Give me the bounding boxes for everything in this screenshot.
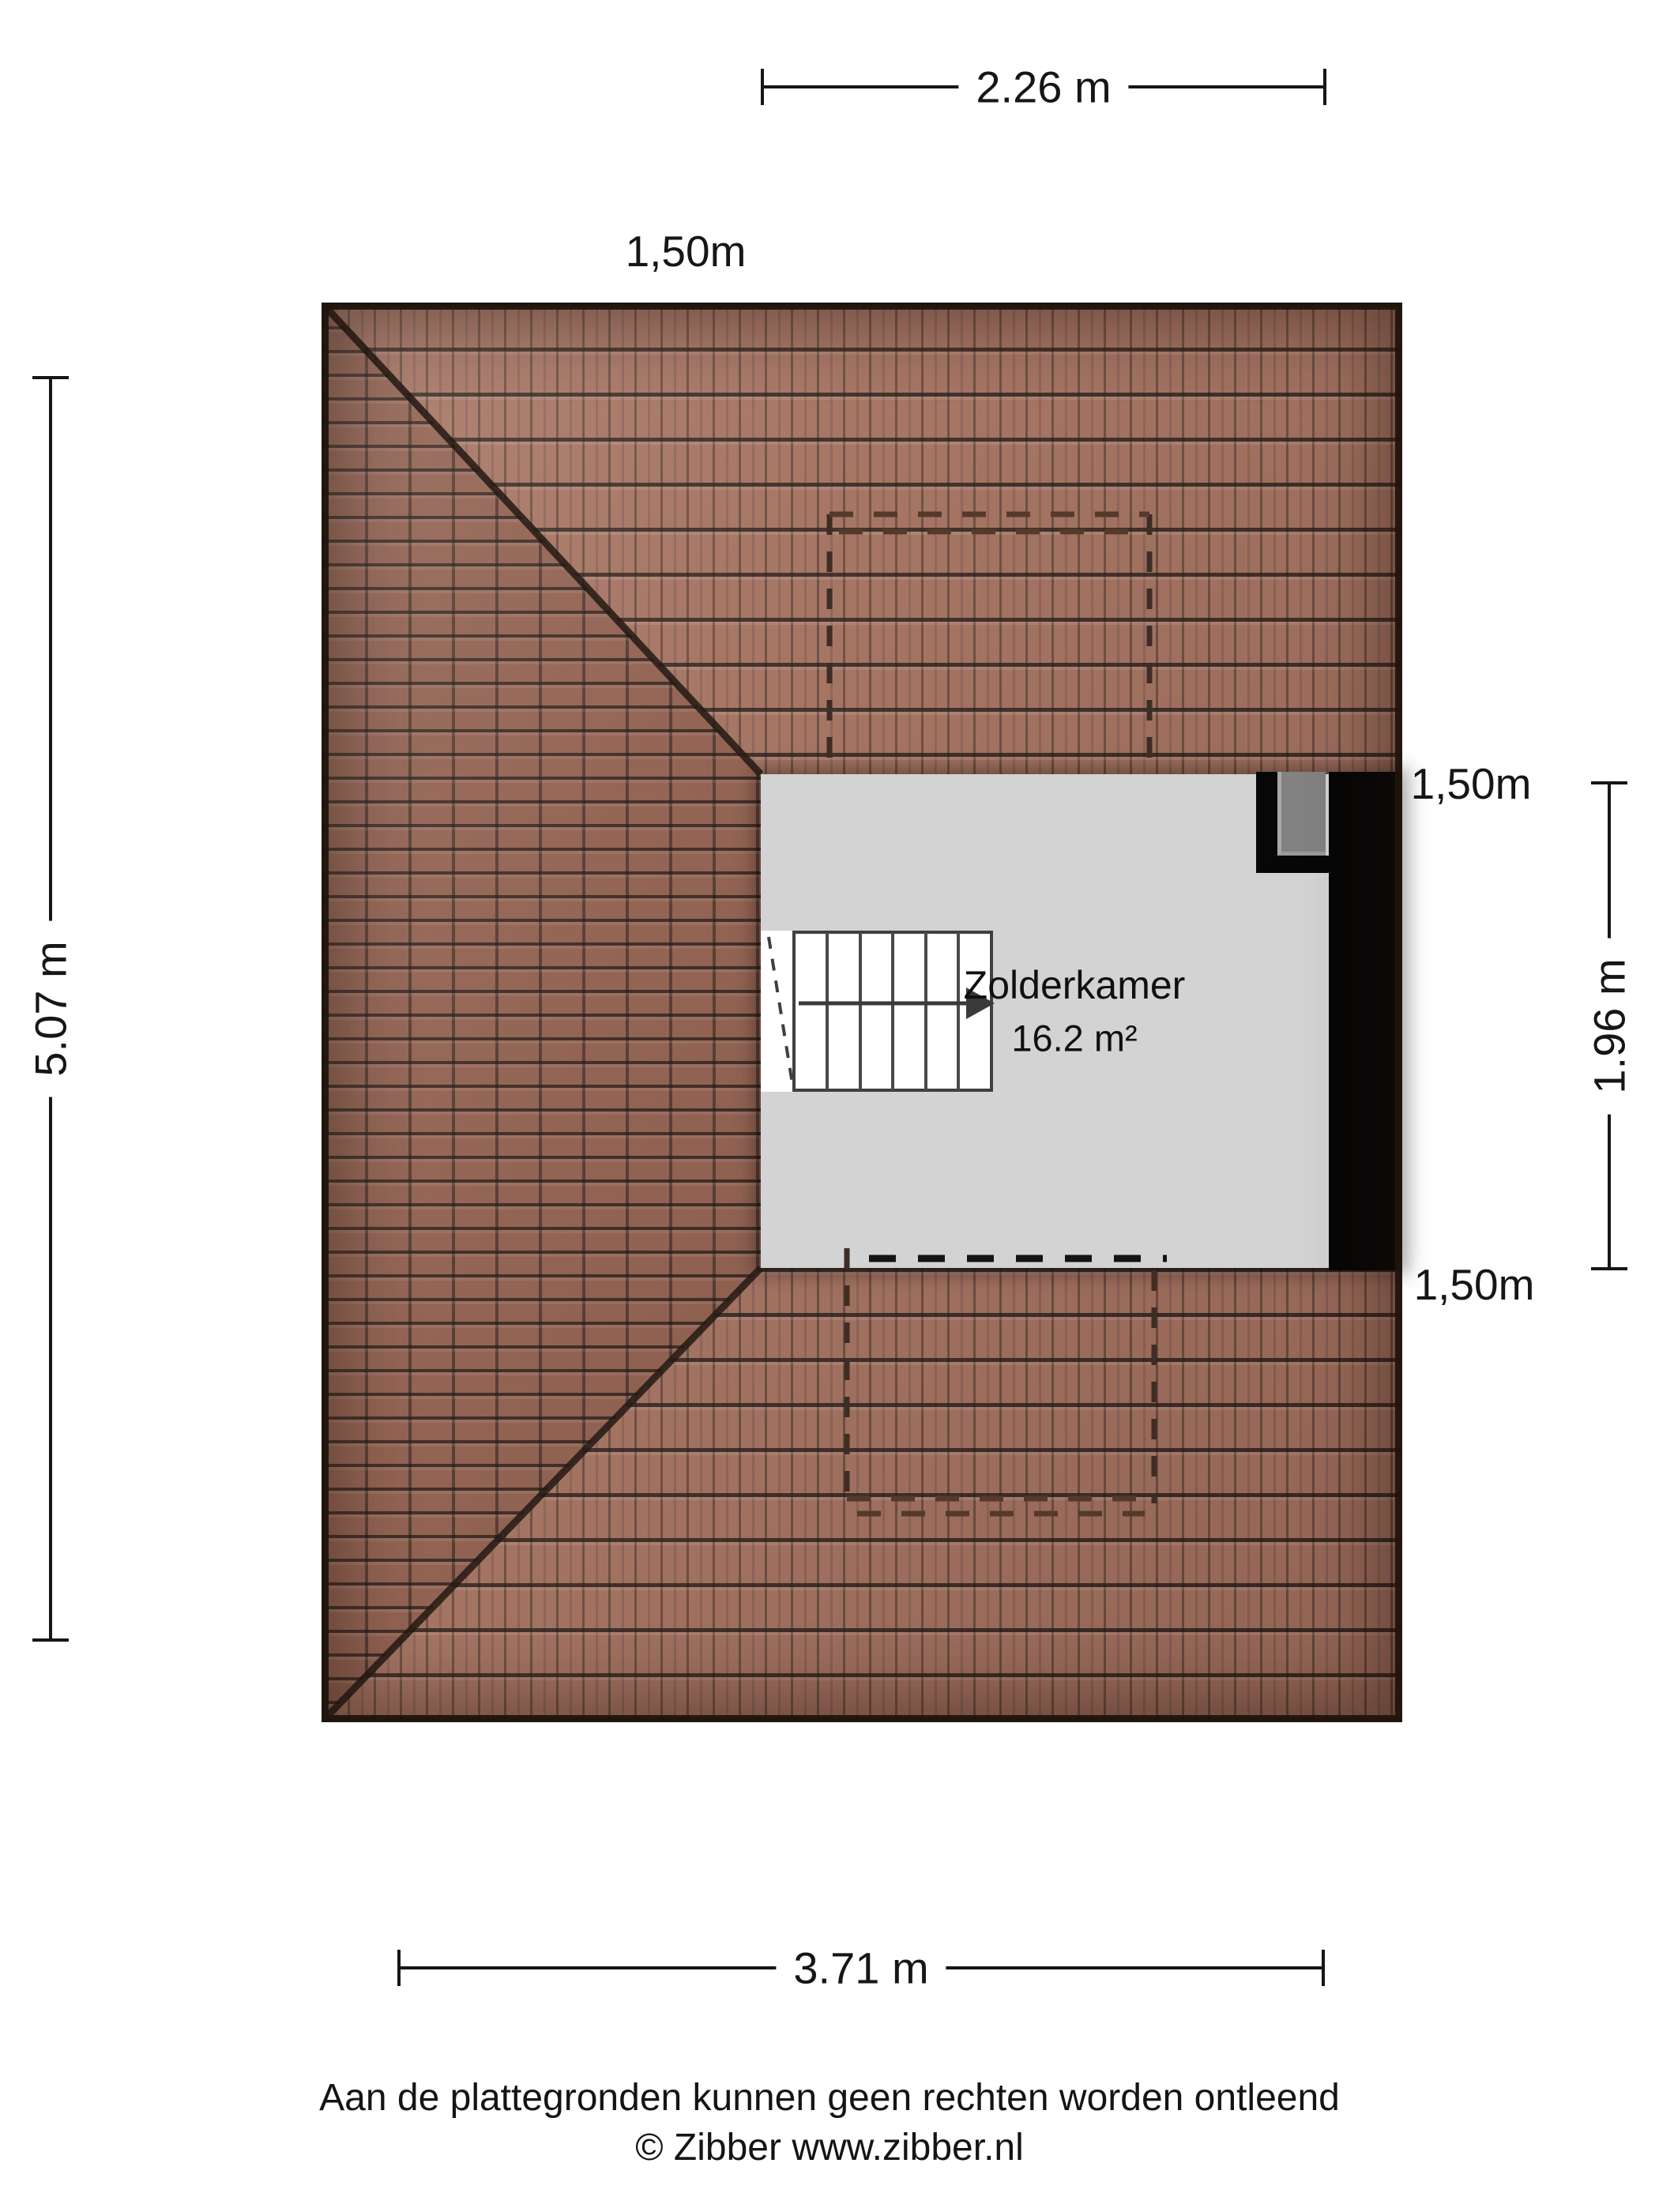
floorplan-page: 2.26 m 1,50m 5.07 m 1.96 m 1,50m 1,50m (0, 0, 1659, 2212)
dimension-left-label: 5.07 m (25, 920, 77, 1097)
room-area-label: 16.2 m² (1011, 1017, 1137, 1060)
floorplan-drawing: Zolderkamer 16.2 m² (322, 303, 1402, 1722)
wall-right (1329, 772, 1402, 1270)
chimney-flue (1277, 772, 1326, 856)
dimension-right-label: 1.96 m (1584, 938, 1635, 1114)
footer-disclaimer: Aan de plattegronden kunnen geen rechten… (0, 2076, 1659, 2120)
dimension-left: 5.07 m (32, 376, 69, 1642)
height-marker-top: 1,50m (626, 226, 747, 276)
dimension-top: 2.26 m (761, 69, 1326, 105)
dimension-tick (1591, 1267, 1627, 1270)
dimension-right: 1.96 m (1591, 781, 1627, 1270)
dimension-tick (32, 1638, 69, 1642)
footer-copyright: © Zibber www.zibber.nl (0, 2126, 1659, 2169)
height-marker-right-lower: 1,50m (1414, 1259, 1535, 1310)
dimension-top-label: 2.26 m (958, 62, 1128, 113)
height-marker-right-upper: 1,50m (1411, 758, 1532, 809)
room-name-label: Zolderkamer (964, 962, 1186, 1008)
dimension-bottom: 3.71 m (397, 1950, 1325, 1986)
dimension-tick (1323, 69, 1326, 105)
wall-chimney-bottom (1256, 856, 1329, 873)
dimension-bottom-label: 3.71 m (776, 1943, 946, 1994)
dimension-tick (1322, 1950, 1325, 1986)
